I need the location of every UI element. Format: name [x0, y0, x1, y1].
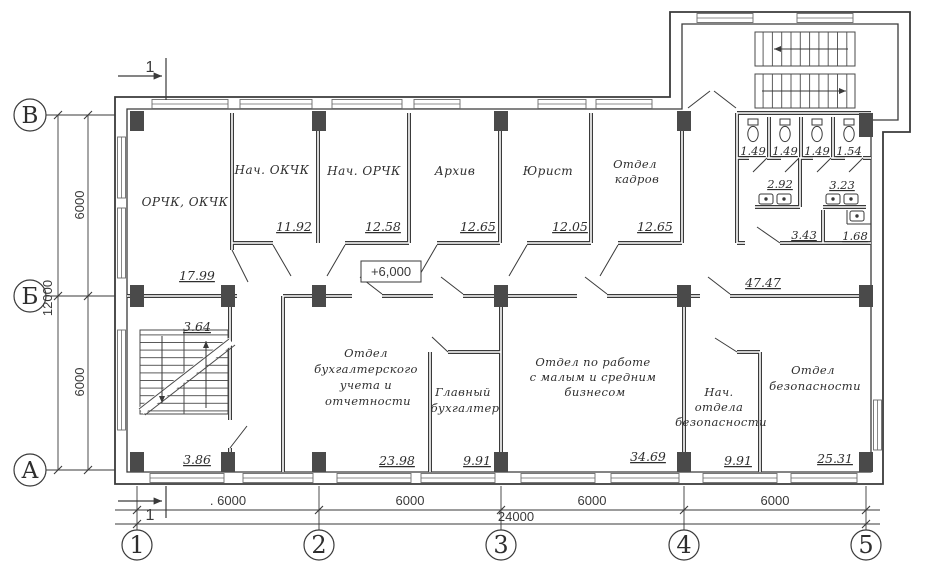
axis-col-3: 3: [493, 531, 508, 559]
room-area-bezopasnost: 25.31: [816, 451, 853, 466]
axis-col-2: 2: [311, 531, 326, 559]
room-label-arhiv: Архив: [434, 164, 476, 178]
dim-left-lower: 6000: [72, 368, 87, 397]
room-label-bezopasnost: Отдел безопасности: [769, 363, 861, 393]
room-label-glavbuh: Главный бухгалтер: [431, 385, 500, 415]
room-label-nach-bezopasnosti: Нач. отдела безопасности: [675, 385, 767, 429]
toilet-icon: [844, 119, 854, 142]
room-area-nach-bezopasnosti: 9.91: [724, 453, 752, 468]
dim-bottom-3: 6000: [578, 493, 607, 508]
room-label-malyi-biznes: Отдел по работе с малым и средним бизнес…: [530, 355, 661, 399]
stair-annex: [755, 32, 855, 108]
axis-row-v: В: [22, 103, 39, 129]
sink-icon: [826, 194, 840, 204]
dim-left-upper: 6000: [72, 191, 87, 220]
room-area-otdel-kadrov: 12.65: [637, 219, 673, 234]
washroom-area-2: 3.23: [829, 178, 855, 192]
room-area-yurist: 12.05: [552, 219, 588, 234]
axis-col-1: 1: [129, 531, 144, 559]
wc-stall-area-2: 1.49: [772, 144, 798, 158]
room-label-nach-okchk: Нач. ОКЧК: [234, 163, 310, 177]
axis-row-a: А: [21, 458, 39, 484]
room-label-otdel-kadrov: Отдел кадров: [613, 157, 661, 186]
axis-col-4: 4: [676, 531, 691, 559]
room-area-orchk: 17.99: [179, 268, 215, 283]
stair-area-upper: 3.64: [183, 319, 211, 334]
stair-left: [139, 330, 235, 415]
dim-bottom-2: 6000: [396, 493, 425, 508]
room-label-buhgalteria: Отдел бухгалтерского учета и отчетности: [314, 346, 422, 408]
room-area-nach-orchk: 12.58: [365, 219, 401, 234]
room-area-malyi-biznes: 34.69: [630, 449, 666, 464]
room-label-nach-orchk: Нач. ОРЧК: [326, 164, 401, 178]
elevation-value: +6,000: [371, 264, 411, 279]
wc-stall-area-3: 1.49: [804, 144, 830, 158]
elevation-mark: +6,000: [361, 261, 421, 282]
wc-stall-area-1: 1.49: [740, 144, 766, 158]
sink-icon: [844, 194, 858, 204]
room-area-buhgalteria: 23.98: [378, 453, 415, 468]
sink-icon: [759, 194, 773, 204]
sink-icon: [777, 194, 791, 204]
section-number-top: 1: [146, 59, 155, 76]
dim-left-total: 12000: [40, 280, 55, 316]
toilet-icon: [748, 119, 758, 142]
room-area-nach-okchk: 11.92: [276, 219, 312, 234]
toilet-icon: [780, 119, 790, 142]
corridor-area: 47.47: [744, 275, 781, 290]
room-area-arhiv: 12.65: [460, 219, 496, 234]
toilet-icon: [812, 119, 822, 142]
washroom-area-1: 2.92: [766, 177, 793, 191]
room-label-yurist: Юрист: [522, 164, 573, 178]
dim-bottom-4: 6000: [761, 493, 790, 508]
dim-bottom-total: 24000: [498, 509, 534, 524]
lobby-area-1: 3.43: [791, 228, 817, 242]
wc-stall-area-4: 1.54: [836, 144, 862, 158]
dim-bottom-1: . 6000: [210, 493, 246, 508]
axis-col-5: 5: [858, 531, 873, 559]
stair-area-lower: 3.86: [183, 452, 211, 467]
section-number-bottom: 1: [146, 507, 155, 524]
lobby-area-2: 1.68: [842, 229, 868, 243]
room-label-orchk: ОРЧК, ОКЧК: [142, 195, 229, 209]
axis-row-b: Б: [22, 284, 39, 310]
room-area-glavbuh: 9.91: [463, 453, 491, 468]
floor-plan: +6,000 В Б А 1 2 3 4 5 6000 6000 12000 .…: [0, 0, 940, 564]
sink-icon: [850, 211, 864, 221]
